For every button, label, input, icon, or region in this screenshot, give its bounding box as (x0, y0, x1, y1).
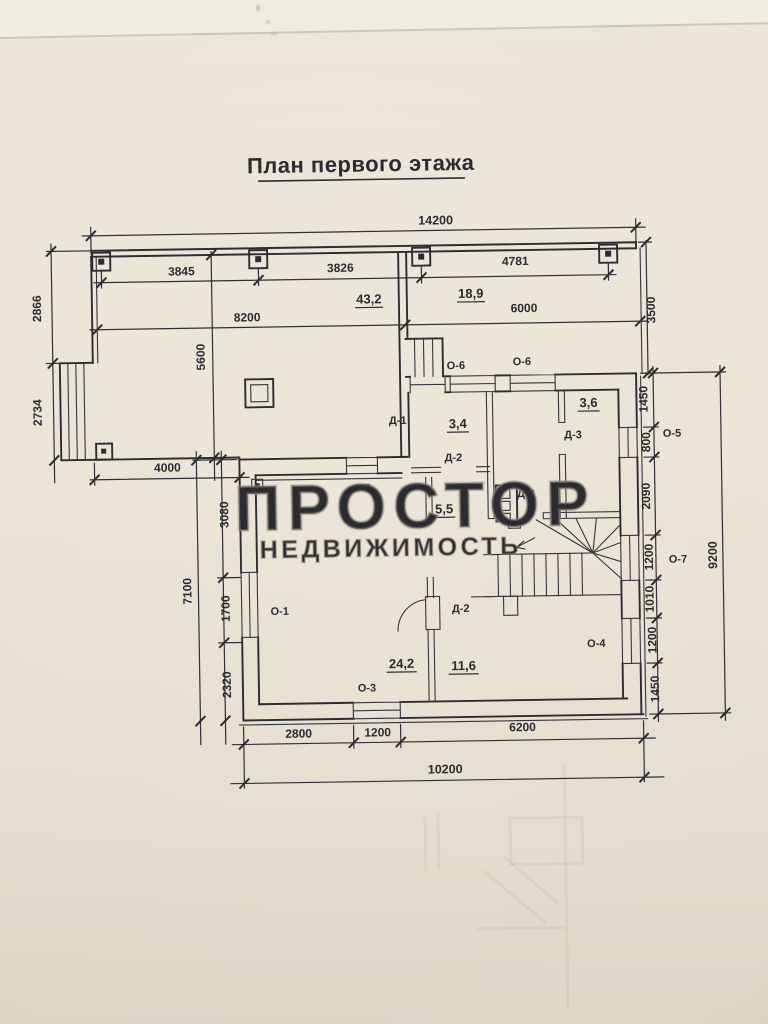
dim-bottom-chain: 2800 1200 6200 10200 (230, 718, 665, 789)
watermark: ПРОСТОР НЕДВИЖИМОСТЬ (234, 467, 597, 565)
window-label-o3: О-3 (358, 682, 377, 694)
window-label-o6: О-6 (447, 360, 466, 372)
page-title: План первого этажа (247, 150, 475, 179)
dim-text: 2320 (220, 671, 234, 698)
dim-text: 1200 (364, 725, 391, 739)
dim-text: 2866 (30, 295, 44, 322)
dim-terrace-entry: 4000 (89, 459, 249, 486)
dim-text: 1700 (218, 595, 232, 622)
window-label-o7-ext: О-7 (669, 553, 688, 565)
door-label-d3: Д-3 (564, 429, 582, 441)
dim-right-chain: 1450 800 2090 1200 1010 1200 1450 9200 (636, 365, 732, 722)
dim-text: 2734 (30, 399, 44, 426)
dim-text: 4000 (154, 460, 181, 474)
free-column (245, 379, 273, 407)
dim-text: 1010 (642, 585, 656, 612)
dim-text: 6200 (509, 720, 536, 734)
area-labels-top: 43,2 18,9 (355, 286, 485, 308)
dim-text: 6000 (511, 301, 538, 315)
window-label-o5-ext: О-5 (663, 428, 682, 440)
dim-text: 14200 (418, 213, 453, 228)
dim-text: 7100 (180, 578, 194, 605)
dim-text: 1450 (648, 675, 662, 702)
dim-text: 800 (639, 432, 653, 453)
dim-text: 1200 (645, 626, 659, 653)
veranda (398, 248, 643, 457)
area-veranda: 18,9 (458, 286, 484, 301)
door-label-d1: Д-1 (389, 415, 407, 427)
door-swing-arc (398, 600, 426, 631)
dim-text: 3826 (327, 261, 354, 275)
floor-plan-drawing: План первого этажа 14200 (0, 0, 768, 1024)
dim-text: 8200 (234, 310, 261, 324)
paper-bleed-through (424, 765, 585, 1011)
window-label-o6: О-6 (513, 356, 532, 368)
dim-text: 9200 (706, 541, 720, 569)
dim-text: 1200 (642, 543, 656, 570)
dim-text: 1450 (636, 385, 650, 412)
dim-terrace-depth: 5600 (192, 250, 220, 481)
floor-plan-photo: План первого этажа 14200 (0, 0, 768, 1024)
entry-steps-left (68, 363, 86, 460)
area-back-room: 3,6 (579, 395, 597, 410)
door-leaf (426, 596, 441, 629)
window-label-o4: О-4 (587, 638, 606, 650)
door-label-d2: Д-2 (444, 452, 462, 464)
dim-text: 4781 (502, 254, 529, 268)
dim-text: 10200 (428, 762, 463, 777)
terrace-outline (58, 254, 274, 460)
area-hall: 3,4 (449, 416, 468, 431)
area-middle-room: 11,6 (451, 658, 476, 673)
dim-column-spans: 3845 3826 4781 (93, 253, 616, 289)
dim-text: 3845 (168, 264, 195, 278)
area-terrace: 43,2 (356, 291, 382, 306)
watermark-sub: НЕДВИЖИМОСТЬ (260, 532, 522, 564)
title-underline (258, 178, 465, 181)
stair-newel (504, 596, 518, 615)
door-label-d2: Д-2 (452, 603, 470, 615)
window-label-o1: О-1 (270, 606, 289, 618)
dim-text: 3500 (644, 296, 658, 323)
dim-text: 3080 (217, 501, 231, 528)
dim-text: 5600 (194, 343, 208, 370)
dim-text: 2800 (285, 726, 312, 740)
dim-text: 2090 (639, 482, 653, 509)
area-living-room: 24,2 (389, 656, 415, 671)
